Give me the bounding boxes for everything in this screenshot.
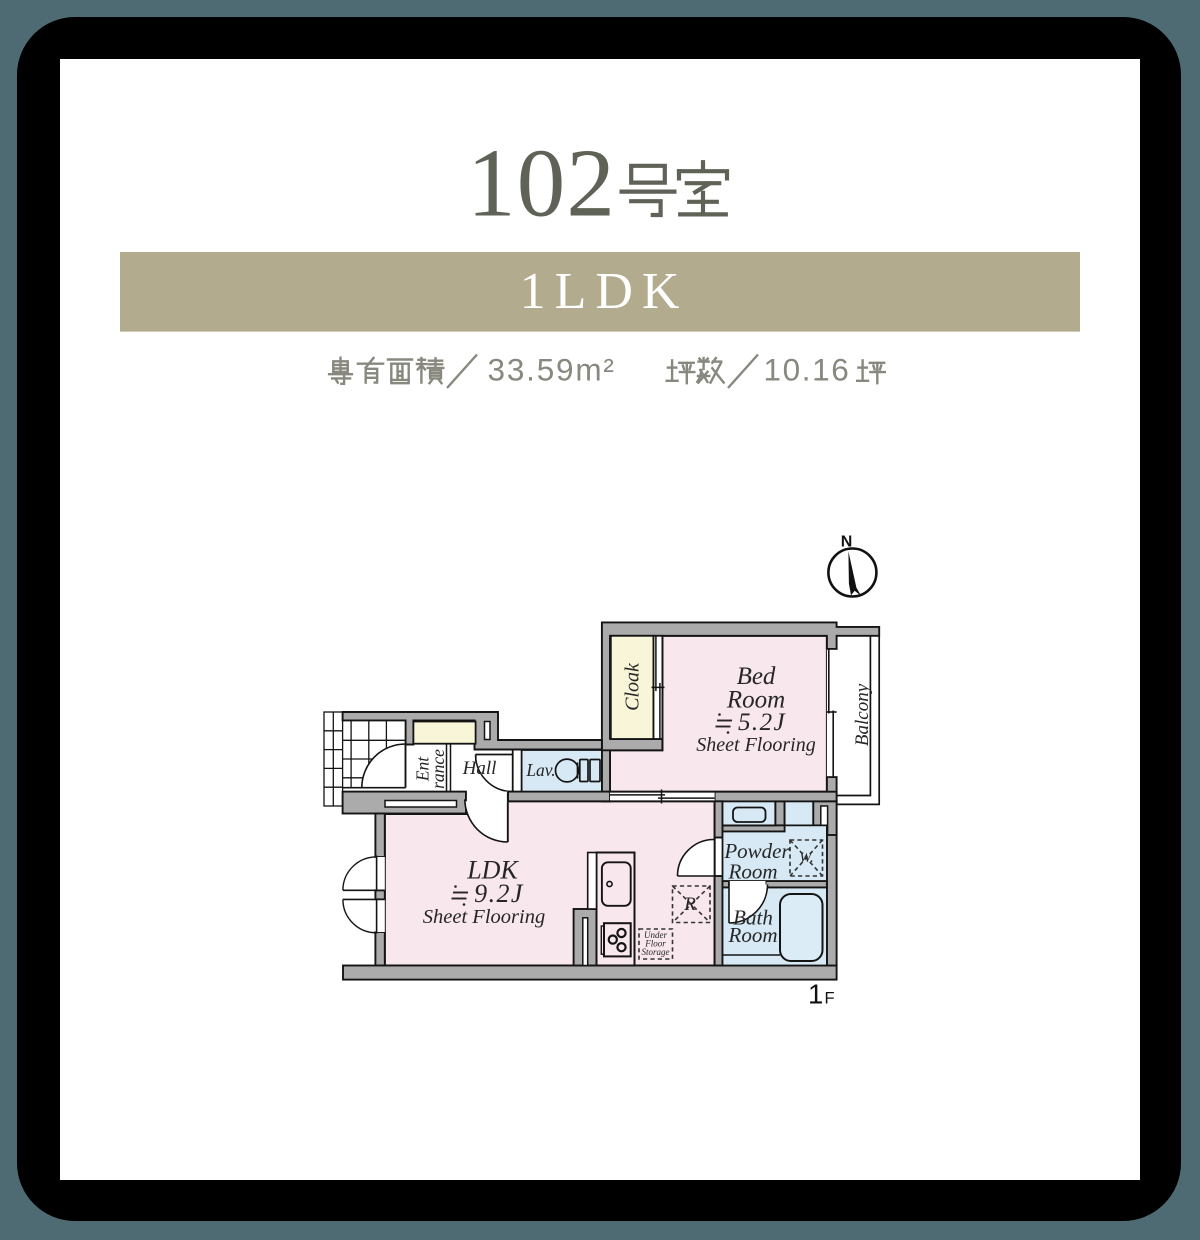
svg-text:Lav.: Lav. — [525, 760, 555, 780]
svg-text:9.2J: 9.2J — [474, 879, 524, 908]
svg-text:F: F — [825, 990, 835, 1008]
svg-text:10.16: 10.16 — [764, 352, 851, 388]
svg-text:Sheet Flooring: Sheet Flooring — [423, 906, 545, 928]
svg-text:W.: W. — [799, 850, 813, 866]
svg-text:Hall: Hall — [462, 758, 497, 779]
svg-text:33.59m²: 33.59m² — [488, 352, 616, 388]
svg-text:5.2J: 5.2J — [738, 709, 786, 736]
svg-text:Sheet Flooring: Sheet Flooring — [696, 734, 815, 756]
svg-text:102: 102 — [467, 129, 616, 236]
svg-text:Storage: Storage — [642, 947, 670, 957]
svg-text:1LDK: 1LDK — [520, 263, 689, 320]
svg-text:Room: Room — [728, 923, 778, 947]
svg-text:Balcony: Balcony — [852, 683, 873, 746]
svg-text:N: N — [841, 534, 853, 551]
svg-text:Room: Room — [728, 860, 778, 884]
svg-text:R: R — [683, 894, 696, 915]
svg-text:1: 1 — [808, 979, 823, 1010]
svg-text:Cloak: Cloak — [622, 662, 644, 711]
svg-text:rance: rance — [428, 749, 448, 789]
